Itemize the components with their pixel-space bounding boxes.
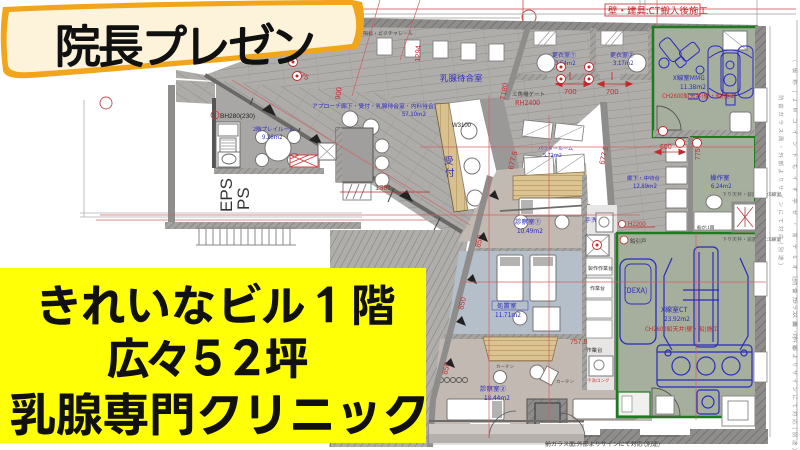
svg-text:H2200: H2200 <box>628 222 646 228</box>
svg-text:PS: PS <box>234 187 253 210</box>
svg-text:700: 700 <box>606 87 619 96</box>
svg-text:BH280(230): BH280(230) <box>220 113 255 120</box>
svg-text:W3100: W3100 <box>452 123 472 129</box>
svg-text:1294: 1294 <box>413 45 423 62</box>
svg-text:900: 900 <box>333 87 344 101</box>
svg-text:1381: 1381 <box>375 183 392 192</box>
svg-text:757.5: 757.5 <box>570 339 588 346</box>
svg-text:775: 775 <box>695 148 702 160</box>
svg-text:700: 700 <box>564 87 577 96</box>
svg-text:600: 600 <box>660 144 672 151</box>
